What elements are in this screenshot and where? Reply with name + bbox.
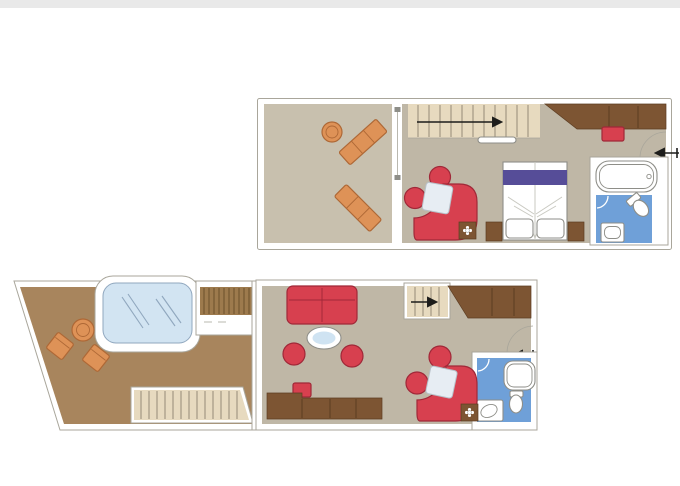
lower-level-plan [14, 276, 537, 430]
pillow-right [537, 219, 564, 238]
lower-armchair-2 [406, 372, 428, 394]
hot-tub-water [103, 283, 192, 343]
upper-corner-table [422, 182, 453, 214]
balcony-round-table [322, 122, 342, 142]
lower-bathroom [472, 352, 537, 430]
terrace-staircase [131, 387, 253, 423]
shower [504, 361, 535, 390]
hot-tub [95, 276, 200, 352]
coffee-table [307, 327, 341, 349]
upper-level-plan [258, 99, 680, 250]
floorplan-page [0, 0, 680, 486]
upper-staircase [408, 104, 540, 143]
pillow-left [506, 219, 533, 238]
upper-stair-handrail [478, 137, 516, 143]
tub-chair-1 [283, 343, 305, 365]
nightstand-left [486, 222, 502, 241]
lower-washbasin [477, 400, 503, 421]
terrace-round-table [72, 319, 94, 341]
lower-staircase [404, 283, 450, 319]
deck-steps [196, 281, 258, 335]
lower-corner-table [425, 366, 457, 399]
upper-ottoman [602, 127, 624, 141]
lower-sofa [287, 286, 357, 324]
bed-runner [503, 170, 567, 185]
lower-toilet [510, 391, 524, 413]
suite-floorplan-image [0, 0, 680, 486]
tub-chair-2 [341, 345, 363, 367]
lower-armchair-1 [429, 346, 451, 368]
top-border-band [0, 0, 680, 8]
nightstand-right [568, 222, 584, 241]
double-bed [503, 162, 567, 240]
upper-bathroom [590, 157, 668, 245]
